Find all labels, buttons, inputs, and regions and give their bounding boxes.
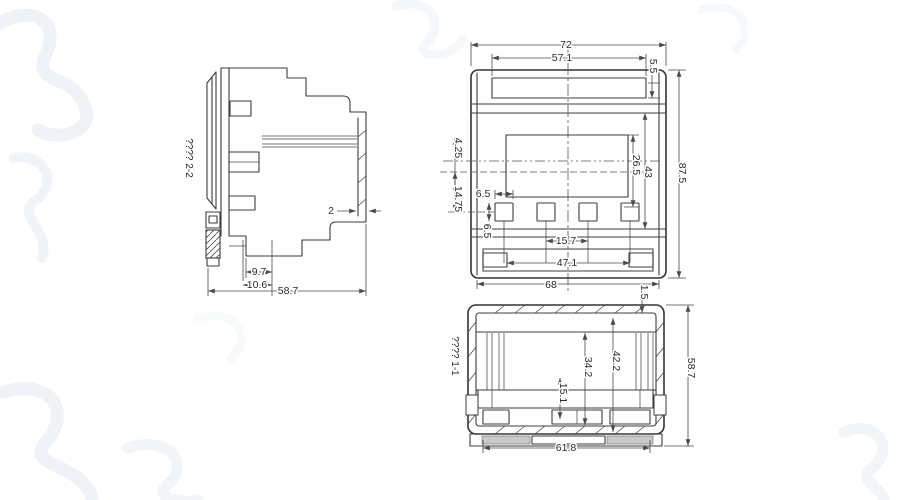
side-view-body-profile — [221, 68, 366, 256]
technical-drawing-sheet: 2 9.7 10.6 58.7 ???? 2-2 — [0, 0, 900, 500]
front-view: 72 57.1 5.5 87.5 43 26.5 4.25 14.75 6.5 — [440, 39, 688, 294]
front-view-centerlines — [440, 42, 660, 294]
dim-6-5-height: 6.5 — [481, 224, 493, 239]
bottom-view-enclosure — [466, 305, 666, 446]
dim-1-5: 1.5 — [638, 285, 650, 300]
dim-58-7-bottom: 58.7 — [685, 358, 697, 379]
dim-58-7-side: 58.7 — [278, 285, 299, 297]
dim-68: 68 — [545, 279, 557, 291]
dim-34-2: 34.2 — [582, 357, 594, 378]
dim-43: 43 — [642, 166, 654, 178]
front-buttons — [495, 203, 639, 221]
dim-4-25: 4.25 — [452, 138, 464, 159]
dim-wall-thickness: 2 — [328, 205, 334, 217]
side-view-dimensions: 2 9.7 10.6 58.7 — [208, 205, 381, 297]
display-window — [506, 135, 628, 197]
section-label-2-2: ???? 2-2 — [183, 138, 194, 178]
dim-47-1: 47.1 — [557, 257, 578, 269]
dim-42-2: 42.2 — [610, 351, 622, 372]
dim-61-8: 61.8 — [556, 442, 577, 454]
bottom-view-section-1-1: 1.5 58.7 42.2 34.2 15.1 61.8 ???? 1-1 — [449, 285, 697, 454]
dim-57-1: 57.1 — [552, 52, 573, 64]
dim-10-6: 10.6 — [247, 279, 268, 291]
dim-9-7: 9.7 — [252, 266, 267, 278]
dim-72: 72 — [560, 39, 572, 51]
side-view-backplate — [206, 72, 220, 266]
watermark-calligraphy — [0, 4, 884, 500]
dim-6-5-width: 6.5 — [476, 188, 491, 200]
section-label-1-1: ???? 1-1 — [449, 336, 460, 376]
dim-15-7: 15.7 — [556, 235, 577, 247]
dim-26-5: 26.5 — [630, 155, 642, 176]
side-view-section-2-2: 2 9.7 10.6 58.7 ???? 2-2 — [183, 68, 381, 297]
drawing-svg: 2 9.7 10.6 58.7 ???? 2-2 — [0, 0, 900, 500]
dim-87-5: 87.5 — [676, 163, 688, 184]
dim-15-1: 15.1 — [557, 383, 569, 404]
dim-14-75: 14.75 — [452, 186, 464, 212]
bottom-view-dimensions: 1.5 58.7 42.2 34.2 15.1 61.8 — [483, 285, 697, 454]
dim-5-5: 5.5 — [647, 59, 659, 74]
